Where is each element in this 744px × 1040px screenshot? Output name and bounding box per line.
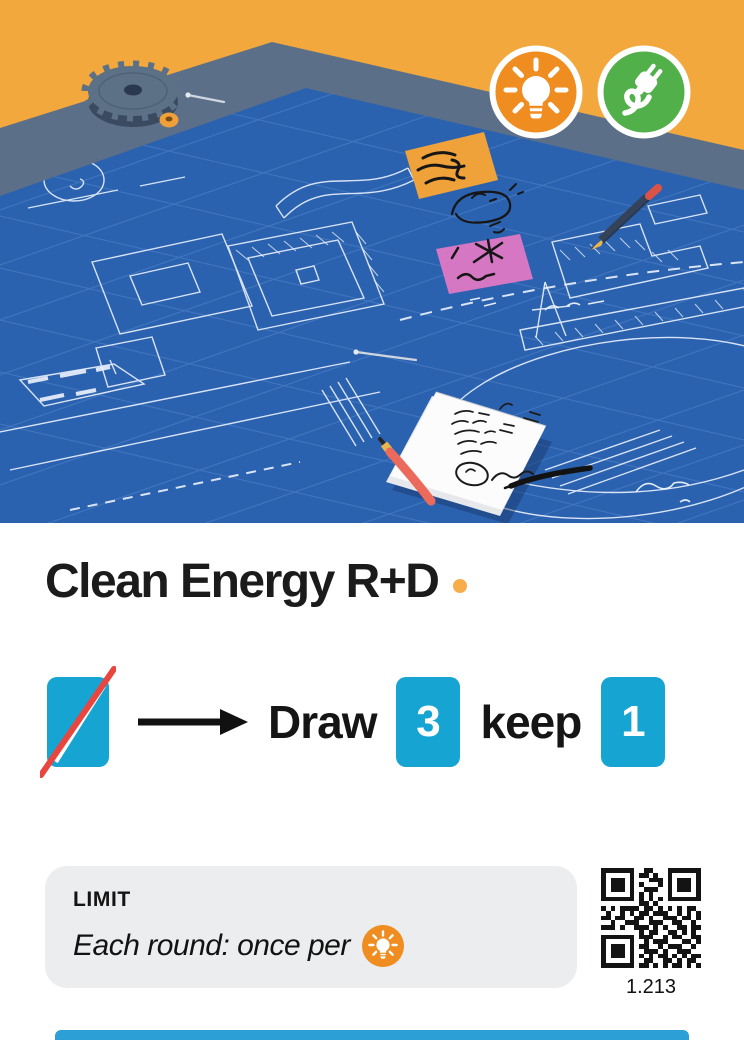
action-row: Draw 3 keep 1 xyxy=(40,664,665,780)
card-title: Clean Energy R+D xyxy=(45,556,438,609)
arrow-right-icon xyxy=(136,707,248,737)
lightbulb-icon xyxy=(489,45,583,139)
keep-count-card: 1 xyxy=(601,677,665,767)
qr-code xyxy=(601,868,701,968)
keep-label: keep xyxy=(480,695,581,749)
draw-label: Draw xyxy=(268,695,376,749)
limit-heading: LIMIT xyxy=(73,888,549,912)
plug-icon xyxy=(597,45,691,139)
washer xyxy=(160,113,179,128)
title-row: Clean Energy R+D xyxy=(45,556,467,609)
lightbulb-icon xyxy=(362,925,404,967)
card-number: 1.213 xyxy=(601,976,701,999)
title-dot-icon xyxy=(453,579,467,593)
card-bottom-bar xyxy=(55,1030,689,1040)
limit-rule: Each round: once per xyxy=(73,925,549,967)
draw-count-card: 3 xyxy=(396,677,460,767)
limit-text: Each round: once per xyxy=(73,929,350,963)
limit-box: LIMIT Each round: once per xyxy=(45,866,577,988)
qr-block: 1.213 xyxy=(601,868,701,999)
discard-card-icon xyxy=(40,666,116,778)
